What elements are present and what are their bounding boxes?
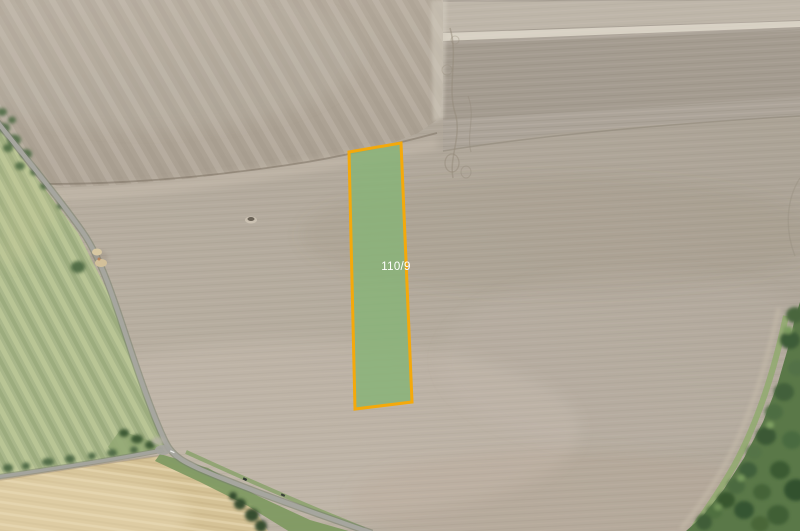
map-viewport[interactable]: 110/9 (0, 0, 800, 531)
parcel-highlight[interactable]: 110/9 (349, 143, 412, 409)
straw-pile (95, 259, 107, 267)
parcel-label: 110/9 (381, 261, 410, 273)
parcel-polygon[interactable] (349, 143, 412, 409)
straw-pile (92, 249, 102, 256)
aerial-map-canvas[interactable]: 110/9 (0, 0, 800, 531)
dark-speck (248, 217, 255, 221)
